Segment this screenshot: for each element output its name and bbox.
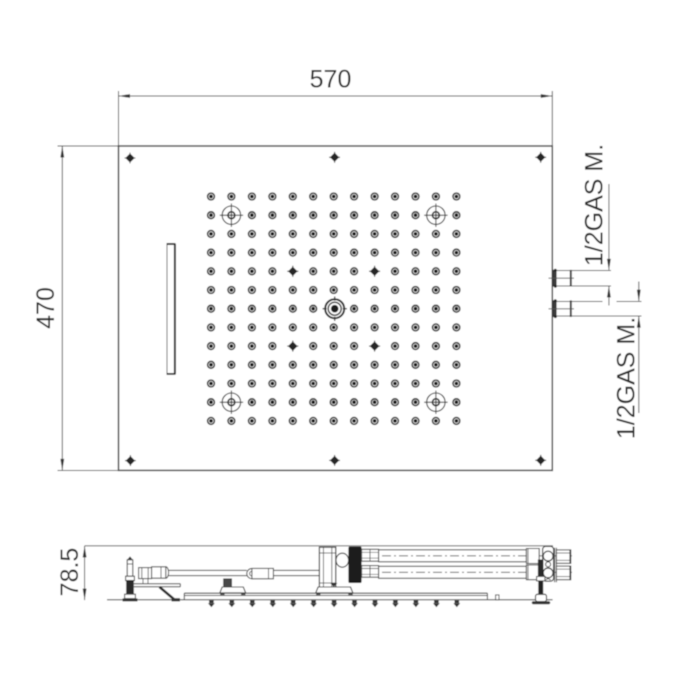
- svg-text:570: 570: [310, 66, 352, 94]
- svg-text:1/2GAS M.: 1/2GAS M.: [581, 144, 609, 266]
- svg-text:470: 470: [32, 287, 60, 329]
- svg-text:1/2GAS M.: 1/2GAS M.: [613, 317, 641, 439]
- svg-text:78.5: 78.5: [56, 548, 84, 597]
